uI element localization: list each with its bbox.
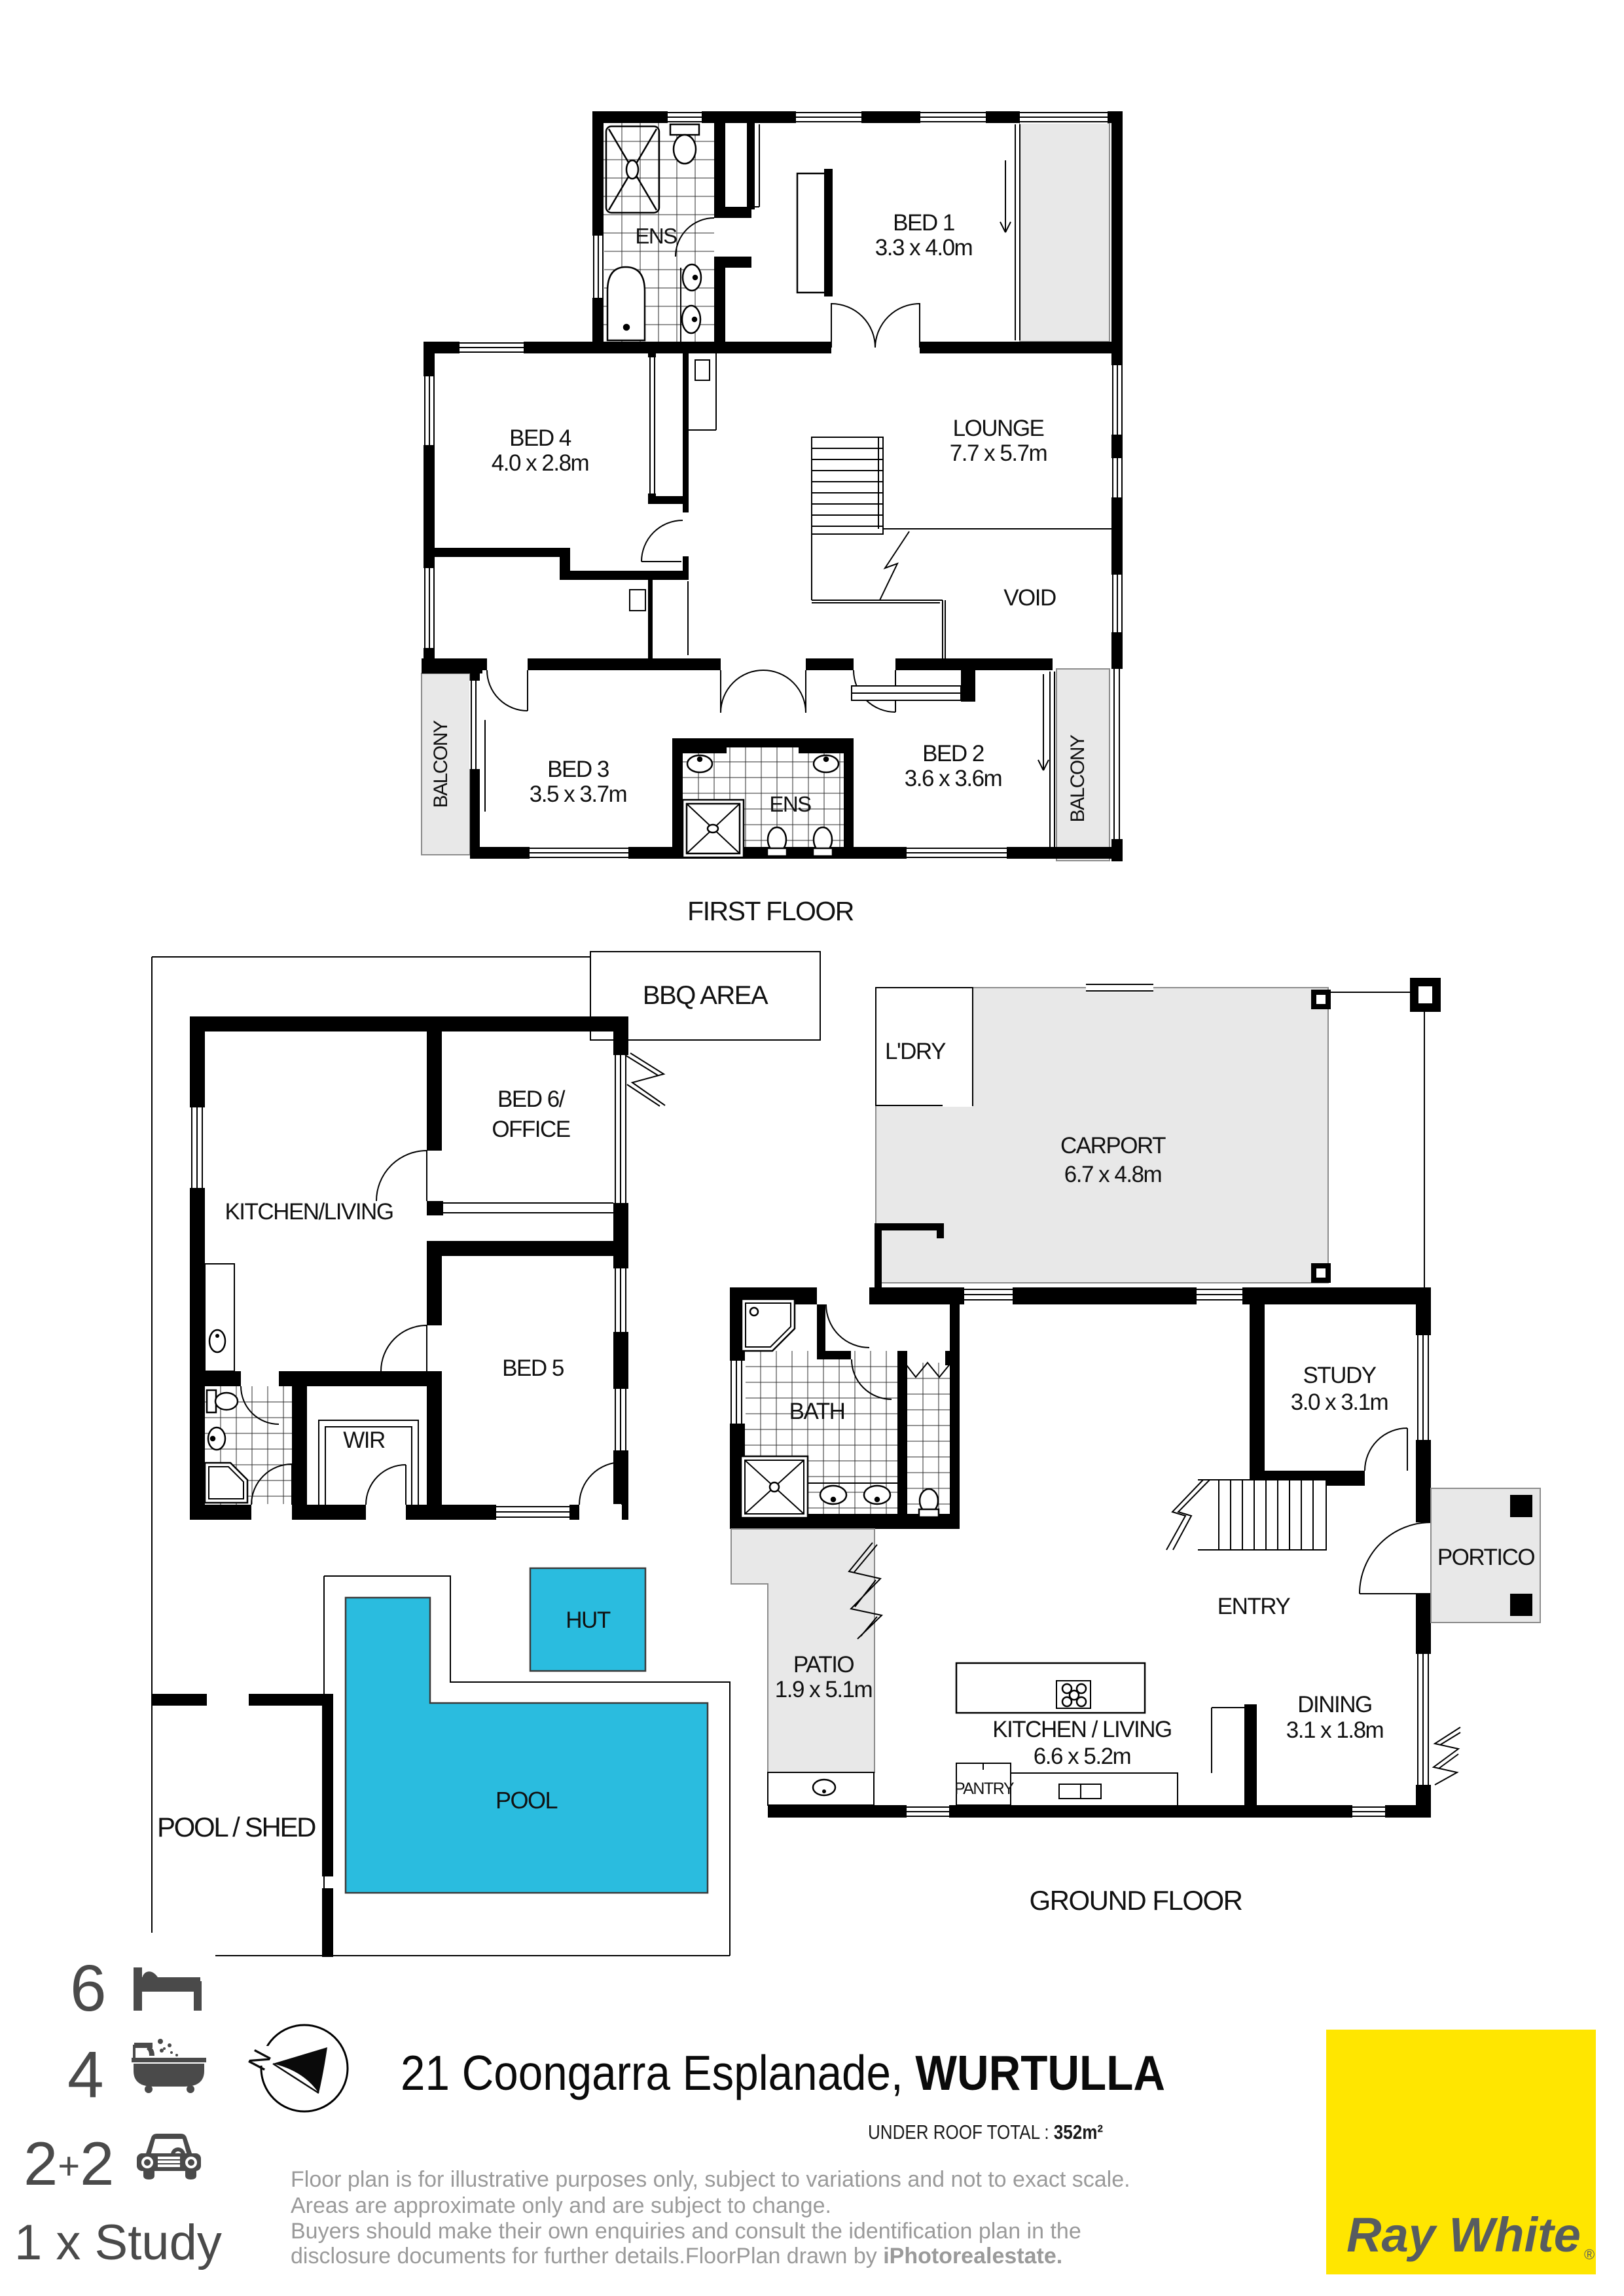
svg-text:BED 4: BED 4 — [509, 425, 571, 451]
svg-text:ENTRY: ENTRY — [1218, 1594, 1291, 1619]
svg-text:1 x Study: 1 x Study — [14, 2215, 222, 2270]
svg-text:HUT: HUT — [566, 1607, 611, 1633]
svg-text:3.1 x 1.8m: 3.1 x 1.8m — [1286, 1717, 1383, 1743]
svg-text:FIRST FLOOR: FIRST FLOOR — [687, 896, 854, 926]
svg-text:6.6 x 5.2m: 6.6 x 5.2m — [1034, 1744, 1130, 1769]
svg-text:21 Coongarra Esplanade, WURTUL: 21 Coongarra Esplanade, WURTULLA — [401, 2045, 1165, 2100]
svg-text:3.6 x 3.6m: 3.6 x 3.6m — [905, 766, 1001, 791]
svg-text:L'DRY: L'DRY — [885, 1039, 946, 1064]
svg-text:BATH: BATH — [789, 1399, 845, 1424]
svg-text:BED 6/: BED 6/ — [497, 1086, 566, 1112]
svg-text:PATIO: PATIO — [793, 1652, 854, 1677]
svg-text:®: ® — [1584, 2246, 1595, 2263]
svg-text:STUDY: STUDY — [1303, 1363, 1376, 1388]
svg-text:POOL: POOL — [496, 1787, 558, 1814]
svg-text:4: 4 — [67, 2038, 104, 2111]
svg-text:1.9 x 5.1m: 1.9 x 5.1m — [775, 1677, 872, 1702]
svg-text:BED 5: BED 5 — [502, 1355, 564, 1381]
svg-text:OFFICE: OFFICE — [492, 1117, 569, 1142]
svg-text:BALCONY: BALCONY — [1067, 734, 1089, 822]
svg-text:KITCHEN / LIVING: KITCHEN / LIVING — [992, 1717, 1172, 1742]
svg-text:PANTRY: PANTRY — [954, 1780, 1015, 1798]
svg-text:Buyers should make their own e: Buyers should make their own enquiries a… — [291, 2219, 1081, 2244]
svg-text:PORTICO: PORTICO — [1437, 1545, 1535, 1570]
svg-text:VOID: VOID — [1003, 585, 1056, 611]
svg-text:LOUNGE: LOUNGE — [953, 416, 1044, 441]
svg-text:BED 1: BED 1 — [893, 210, 954, 236]
svg-text:6: 6 — [70, 1952, 107, 2025]
svg-text:GROUND FLOOR: GROUND FLOOR — [1029, 1885, 1242, 1916]
svg-text:6.7 x 4.8m: 6.7 x 4.8m — [1064, 1162, 1161, 1187]
svg-text:3.5 x 3.7m: 3.5 x 3.7m — [530, 781, 626, 807]
svg-text:3.0 x 3.1m: 3.0 x 3.1m — [1291, 1390, 1388, 1415]
svg-text:ENS: ENS — [769, 792, 811, 816]
svg-text:KITCHEN/LIVING: KITCHEN/LIVING — [225, 1199, 393, 1225]
svg-text:ENS: ENS — [635, 224, 677, 248]
svg-text:Floor plan is for illustrative: Floor plan is for illustrative purposes … — [291, 2167, 1130, 2192]
svg-text:CARPORT: CARPORT — [1060, 1133, 1166, 1158]
svg-text:BBQ AREA: BBQ AREA — [643, 981, 768, 1010]
svg-text:BALCONY: BALCONY — [430, 720, 452, 808]
svg-text:disclosure documents for furth: disclosure documents for further details… — [291, 2244, 1062, 2269]
svg-text:4.0 x 2.8m: 4.0 x 2.8m — [492, 450, 588, 476]
svg-text:WIR: WIR — [343, 1427, 385, 1453]
svg-text:Ray White: Ray White — [1346, 2208, 1581, 2262]
svg-text:BED 3: BED 3 — [547, 757, 609, 782]
svg-text:Areas are approximate only and: Areas are approximate only and are subje… — [291, 2193, 831, 2218]
svg-text:7.7 x 5.7m: 7.7 x 5.7m — [950, 440, 1047, 466]
svg-text:DINING: DINING — [1297, 1692, 1372, 1717]
svg-text:UNDER ROOF TOTAL : 352m²: UNDER ROOF TOTAL : 352m² — [868, 2121, 1103, 2144]
svg-text:3.3 x 4.0m: 3.3 x 4.0m — [875, 235, 972, 260]
svg-text:POOL / SHED: POOL / SHED — [157, 1812, 316, 1842]
svg-text:BED 2: BED 2 — [922, 741, 984, 766]
